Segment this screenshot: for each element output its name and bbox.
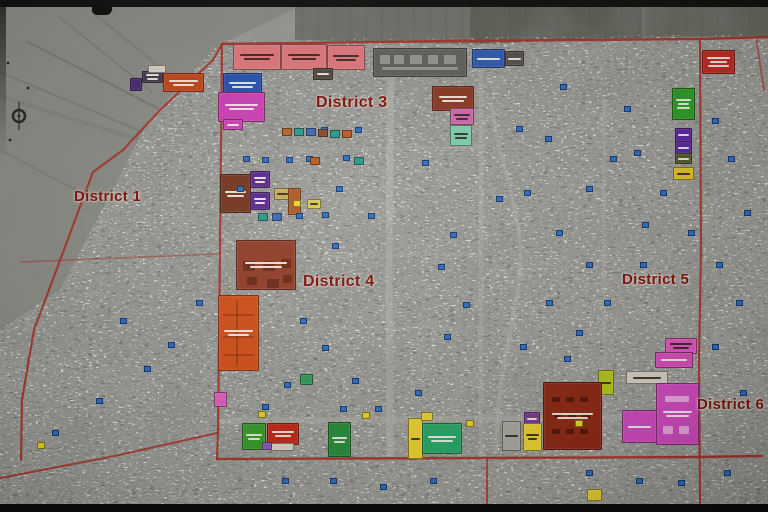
- photo-frame-mark: [92, 0, 112, 15]
- map-background: [0, 0, 768, 512]
- photo-frame-bottom: [0, 504, 768, 512]
- photo-frame-top: [0, 0, 768, 7]
- aerial-map-photo: District 1District 3District 4District 5…: [0, 0, 768, 512]
- photo-blotch-overlay: [0, 0, 768, 512]
- photo-edge-shadow: [0, 7, 6, 157]
